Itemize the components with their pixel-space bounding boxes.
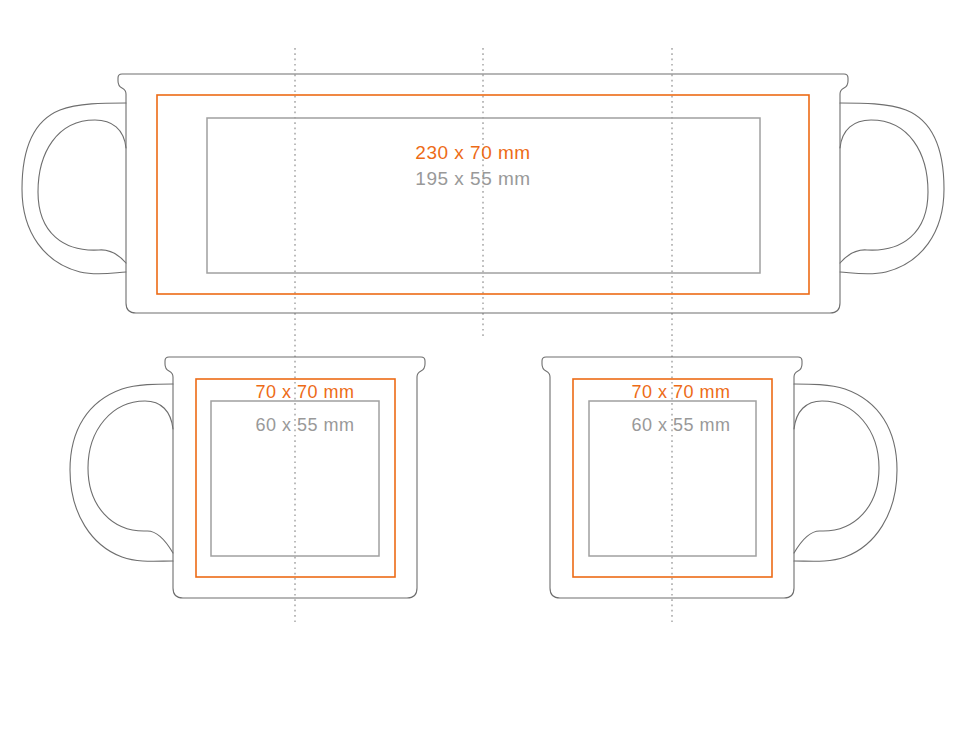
mug-print-area-diagram: 230 x 70 mm 195 x 55 mm 70 x 70 mm 60 x … — [0, 0, 971, 733]
wrap-mug-left-handle — [22, 103, 126, 274]
right-handle-mug: 70 x 70 mm 60 x 55 mm — [542, 357, 897, 598]
diagram-svg: 230 x 70 mm 195 x 55 mm 70 x 70 mm 60 x … — [0, 0, 971, 733]
right-mug-safe-area-label: 60 x 55 mm — [631, 415, 730, 435]
wrap-right-handle-inner-line — [840, 120, 928, 263]
right-mug-handle-inner-line — [794, 401, 879, 553]
wrap-mug-right-handle — [840, 103, 944, 274]
wrap-print-area-label: 230 x 70 mm — [415, 142, 530, 163]
wrap-safe-area-label: 195 x 55 mm — [415, 168, 530, 189]
right-mug-print-area-label: 70 x 70 mm — [631, 382, 730, 402]
left-mug-safe-area-label: 60 x 55 mm — [255, 415, 354, 435]
wrap-print-area-rect — [157, 95, 809, 294]
left-mug-handle-inner-line — [88, 401, 173, 553]
left-mug-handle — [70, 384, 173, 561]
left-handle-mug: 70 x 70 mm 60 x 55 mm — [70, 357, 425, 598]
wrap-left-handle-inner-line — [38, 120, 126, 263]
left-mug-print-area-label: 70 x 70 mm — [255, 382, 354, 402]
